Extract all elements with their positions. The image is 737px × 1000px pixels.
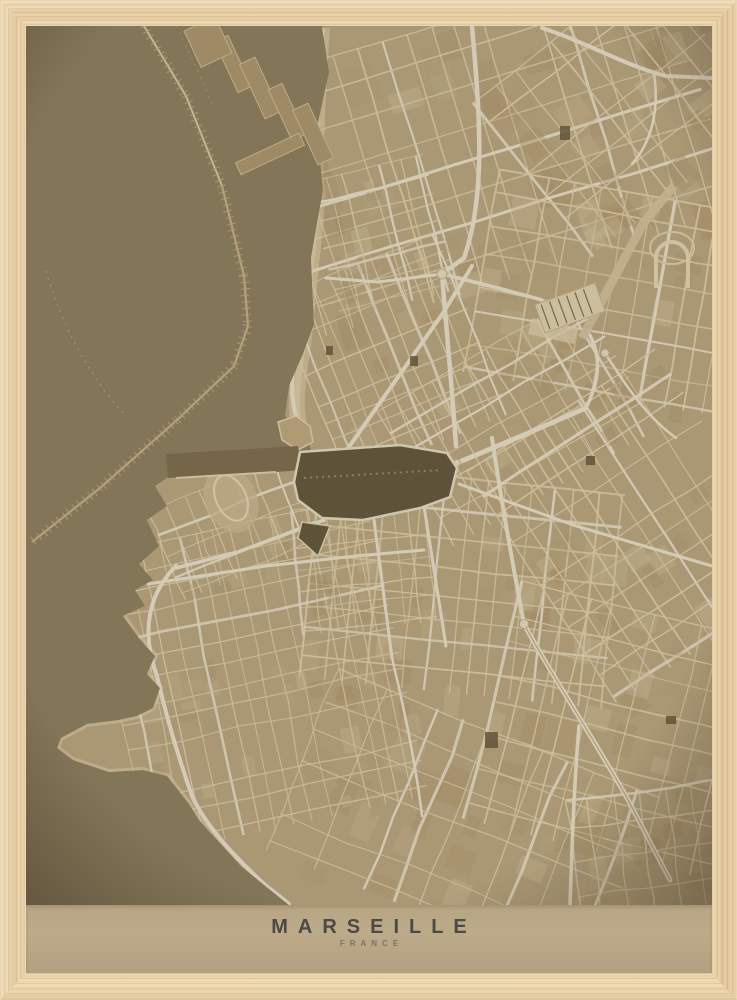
map-title: MARSEILLE bbox=[26, 916, 712, 938]
picture-frame-right bbox=[712, 0, 737, 1000]
map-graphic bbox=[26, 26, 712, 905]
map-print: MARSEILLE FRANCE bbox=[26, 26, 712, 973]
title-band: MARSEILLE FRANCE bbox=[26, 905, 712, 973]
map-subtitle: FRANCE bbox=[26, 939, 712, 949]
picture-frame-left bbox=[0, 0, 26, 1000]
picture-frame-top bbox=[0, 0, 737, 26]
framed-map-poster: MARSEILLE FRANCE bbox=[0, 0, 737, 1000]
picture-frame-bottom bbox=[0, 973, 737, 1000]
